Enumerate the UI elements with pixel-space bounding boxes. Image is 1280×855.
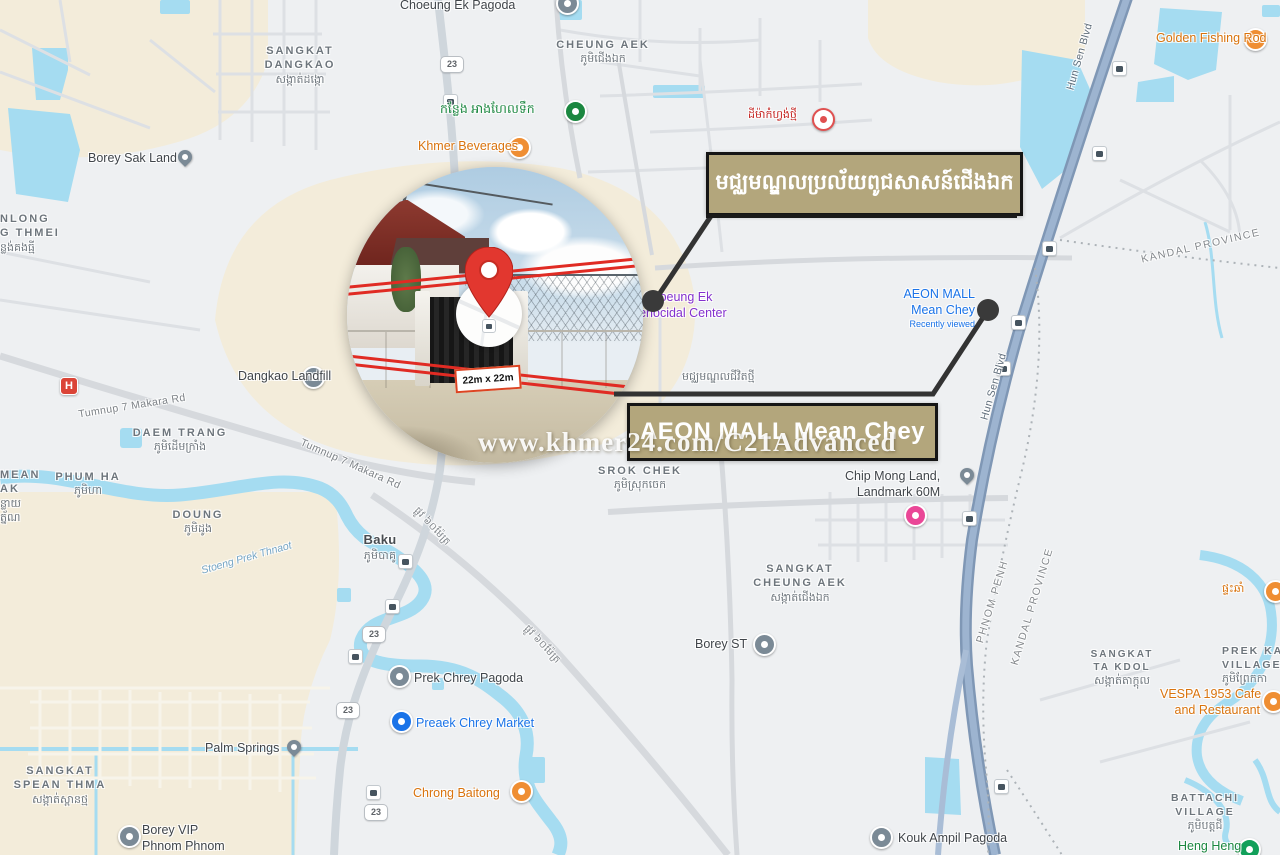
- bus-stop-icon[interactable]: [1011, 315, 1026, 330]
- bus-stop-icon[interactable]: [385, 599, 400, 614]
- route-23-shield: 23: [440, 56, 464, 73]
- bus-stop-icon[interactable]: [1092, 146, 1107, 161]
- area-label-daem-trang: DAEM TRANG ភូមិដើមក្រាំង: [125, 426, 235, 455]
- poi-label-dangkao-landfill[interactable]: Dangkao Landfill: [238, 368, 331, 384]
- poi-label-land-new[interactable]: ដីម៉ាកំហ្វង់ថ្មី: [748, 108, 797, 122]
- area-label-phum-ha: PHUM HA ភូមិហា: [48, 470, 128, 499]
- bus-stop-icon[interactable]: [1112, 61, 1127, 76]
- area-label-battachi: BATTACHI VILLAGE ភូមិបត្តជី: [1160, 792, 1250, 834]
- property-pin-icon: [465, 247, 513, 319]
- area-label-doung: DOUNG ភូមិដូង: [158, 508, 238, 537]
- poi-label-chrong-baitong[interactable]: Chrong Baitong: [413, 785, 500, 801]
- route-23-shield: 23: [336, 702, 360, 719]
- area-label-prek-ka: PREK KA VILLAGE ភូមិព្រែកកា: [1222, 645, 1280, 687]
- pagoda-icon[interactable]: [388, 665, 411, 688]
- bus-stop-icon[interactable]: [1042, 241, 1057, 256]
- restaurant-icon[interactable]: [510, 780, 533, 803]
- route-23-shield: 23: [362, 626, 386, 643]
- poi-label-borey-st[interactable]: Borey ST: [695, 636, 747, 652]
- route-23-shield: 23: [364, 804, 388, 821]
- house-icon[interactable]: [1264, 580, 1280, 603]
- property-photo-inset: 22m x 22m: [347, 167, 643, 463]
- poi-label-vespa[interactable]: VESPA 1953 Cafe and Restaurant: [1160, 686, 1260, 719]
- poi-label-chip-mong[interactable]: Chip Mong Land, Landmark 60M: [845, 468, 940, 501]
- area-label-mean-fragment: MEAN AK ន្លាយ ត្ន័ណ: [0, 468, 40, 525]
- poi-label-borey-sak-land[interactable]: Borey Sak Land: [88, 150, 177, 166]
- poi-label-aeon-mall[interactable]: AEON MALL Mean Chey Recently viewed: [880, 286, 975, 330]
- poi-label-preaek-chrey-market[interactable]: Preaek Chrey Market: [416, 715, 534, 731]
- bus-stop-icon[interactable]: [994, 779, 1009, 794]
- callout-underline: [706, 214, 1017, 218]
- plot-size-badge: 22m x 22m: [454, 365, 522, 394]
- bus-stop-icon[interactable]: [962, 511, 977, 526]
- poi-label-prek-chrey-pagoda[interactable]: Prek Chrey Pagoda: [414, 670, 523, 686]
- hospital-icon[interactable]: H: [60, 377, 78, 395]
- area-label-srok-chek: SROK CHEK ភូមិស្រុកចេក: [590, 464, 690, 493]
- area-label-sangkat-ta-kdol: SANGKAT TA KDOL សង្កាត់តាក្ដុល: [1082, 648, 1162, 688]
- poi-label-new-life-center[interactable]: មជ្ឈមណ្ឌលជីវិតថ្មី: [682, 370, 755, 384]
- market-cart-icon[interactable]: [390, 710, 413, 733]
- poi-label-choeung-ek-pagoda[interactable]: Choeung Ek Pagoda: [400, 0, 515, 13]
- area-label-baku: Baku ភូមិបាគូ: [345, 532, 415, 563]
- area-label-sangkat-dangkao: SANGKAT DANGKAO សង្កាត់ដង្កោ: [240, 44, 360, 87]
- poi-label-genocidal-center[interactable]: Choeung Ek Genocidal Center: [628, 289, 728, 322]
- area-label-sangkat-spean-thma: SANGKAT SPEAN THMA សង្កាត់ស្ពានថ្ម: [0, 764, 120, 807]
- poi-label-khmer-beverages[interactable]: Khmer Beverages: [418, 138, 518, 154]
- province-boundary-line: [983, 240, 1280, 855]
- poi-label-kouk-ampil-pagoda[interactable]: Kouk Ampil Pagoda: [898, 830, 1007, 846]
- bus-stop-icon[interactable]: [348, 649, 363, 664]
- poi-label-borey-vip[interactable]: Borey VIP Phnom Phnom: [142, 822, 225, 855]
- listing-map-graphic: 23 23 23 23 H Choeung Ek Pagoda CHEUNG A…: [0, 0, 1280, 855]
- area-label-anlong-fragment: NLONG G THMEI ន្លង់គងធ្មី: [0, 212, 60, 255]
- callout-box-genocidal-center: មជ្ឈមណ្ឌលប្រល័យពូជសាសន៍ជើងឯក: [706, 152, 1023, 216]
- bus-stop-icon: [482, 319, 496, 333]
- poi-label-palm-springs[interactable]: Palm Springs: [205, 740, 279, 756]
- watermark: www.khmer24.com/C21Advanced: [478, 427, 897, 458]
- cafe-icon[interactable]: [1262, 690, 1280, 713]
- bus-stop-icon[interactable]: [366, 785, 381, 800]
- hotel-icon[interactable]: [904, 504, 927, 527]
- borey-icon[interactable]: [118, 825, 141, 848]
- recycling-icon[interactable]: [1238, 838, 1261, 855]
- swimming-pool-icon[interactable]: [564, 100, 587, 123]
- poi-label-swimming-pool[interactable]: កន្លែង អាងហែលទឹក: [440, 101, 535, 117]
- homestay-icon[interactable]: [812, 108, 835, 131]
- poi-label-heng-heng[interactable]: Heng Heng: [1178, 838, 1241, 854]
- poi-label-golden-fishing-rod[interactable]: Golden Fishing Rod: [1156, 30, 1266, 46]
- poi-label-phteah-cham[interactable]: ផ្ទះឆាំ: [1222, 582, 1244, 596]
- borey-icon[interactable]: [753, 633, 776, 656]
- pagoda-icon[interactable]: [870, 826, 893, 849]
- area-label-cheung-aek: CHEUNG AEK ភូមិជើងឯក: [548, 38, 658, 67]
- area-label-sangkat-cheung-aek: SANGKAT CHEUNG AEK សង្កាត់ជើងឯក: [745, 562, 855, 605]
